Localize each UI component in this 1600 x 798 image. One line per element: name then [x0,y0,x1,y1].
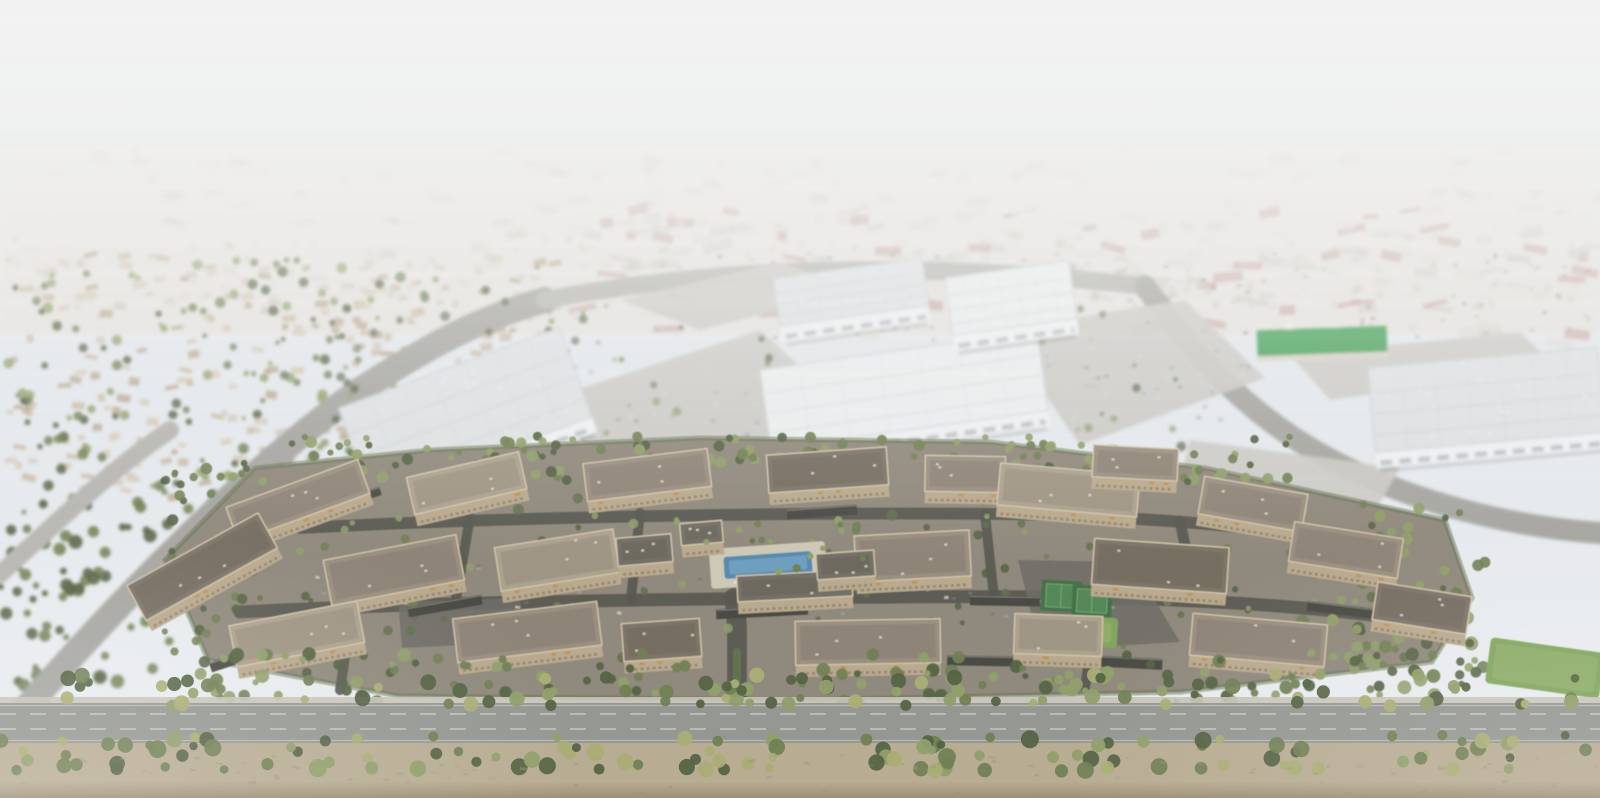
distant-block [457,279,466,284]
pool-palm [775,568,782,575]
commercial-car [1534,267,1537,270]
frontage-tree-lower [524,752,540,768]
commercial-car [1568,327,1572,329]
rooftop-unit [879,636,882,638]
dirt-speck [1107,761,1110,764]
complex-inner-tree [640,588,648,596]
suburb-tree [535,265,539,269]
balcony-awning [1110,517,1115,520]
complex-back-tree [634,444,645,455]
complex-inner-tree [296,547,304,555]
rooftop-unit [936,463,939,465]
complex-right-tree [1466,639,1475,648]
suburb-roof [452,300,459,308]
suburb-tree [282,302,291,311]
rooftop-unit [852,571,855,573]
frontage-tree-lower [1456,747,1469,760]
frontage-tree-upper [1029,699,1037,707]
dirt-speck [1554,786,1558,788]
rooftop-unit [929,558,932,560]
frontage-tree-lower [1504,764,1514,774]
frontage-tree-upper [453,683,468,698]
suburb-roof [223,324,232,332]
frontage-tree-lower [118,737,133,752]
suburb-roof [385,333,392,341]
complex-left-tree [201,463,213,475]
complex-front-tree-east [836,668,848,680]
frontage-tree-lower [166,731,182,747]
distant-tree [421,266,426,271]
frontage-tree-upper [420,674,436,690]
lot-b-car [1203,405,1208,408]
left-lower-tree [59,592,68,601]
complex-inner-tree [1043,554,1049,560]
commercial-block [1518,205,1543,213]
distant-block [1132,166,1140,173]
rooftop-unit [873,464,876,466]
complex-inner-tree [1360,501,1368,509]
complex-inner-tree [1121,643,1127,649]
commercial-car [1366,306,1370,309]
frontage-tree-upper [1420,696,1434,710]
distant-tree [192,279,196,283]
frontage-tree-lower [1072,749,1083,760]
complex-inner-tree [513,504,524,515]
pool-palm [768,539,774,545]
suburb-tree [318,289,326,297]
lot-b-car [1084,366,1089,368]
complex-front-tree-west [499,655,507,663]
distant-block [378,250,395,257]
frontage-tree-lower [679,759,695,775]
left-lower-tree [29,596,36,603]
commercial-car [1369,324,1373,327]
rooftop-unit [597,481,600,484]
dirt-speck [28,763,35,765]
distant-tree [292,271,295,274]
lot-a-car [743,392,748,395]
skylight [1051,311,1054,313]
distant-tree [694,239,698,243]
left-lower-tree [55,626,64,635]
lot-b-car [1227,380,1231,383]
suburb-tree [107,388,115,396]
frontage-tree-lower [1269,737,1285,753]
distant-block [561,201,572,210]
mid-tree [579,314,588,323]
frontage-tree-lower [1287,760,1302,775]
complex-right-tree [1351,641,1363,653]
complex-back-tree [289,440,296,447]
lot-b-car [1166,377,1170,380]
complex-right-tree [1479,557,1490,568]
suburb-roof [442,284,449,290]
frontage-tree-lower [887,751,902,766]
distant-tree [1303,289,1306,292]
left-lower-tree [111,675,125,689]
distant-block [1425,254,1446,263]
mid-tree [1100,412,1104,416]
frontage-tree-upper [1521,700,1530,709]
complex-back-tree [392,462,399,469]
complex-right-tree [1471,667,1482,678]
pool-palm [736,527,743,534]
dirt-speck [3,792,7,795]
suburb-tree [330,297,338,305]
suburb-tree [72,325,79,332]
distant-block [24,246,42,254]
lot-b-car [1075,428,1080,431]
left-lower-tree [73,583,84,594]
rooftop-unit [1400,614,1403,617]
suburb-roof [398,295,408,301]
complex-right-tree [1456,657,1464,665]
complex-left-tree [167,514,178,525]
rooftop-unit [1117,550,1120,552]
suburb-tree [253,410,262,419]
lot-b-car [1142,392,1146,395]
suburb-roof [228,415,238,422]
left-lower-tree [39,500,48,509]
suburb-tree [337,263,347,273]
mid-tree [501,298,509,306]
distant-tree [366,249,371,254]
lot-b-car [1201,384,1205,387]
balcony-awning [1164,483,1169,486]
complex-inner-tree [1246,606,1251,611]
frontage-tree-lower [974,750,984,760]
commercial-car [932,339,935,342]
distant-block [474,192,481,197]
frontage-tree-upper [463,697,478,712]
frontage-tree-upper [619,685,632,698]
mid-tree [1132,383,1141,392]
complex-right-tree [1406,648,1419,661]
complex-back-tree [1263,473,1274,484]
rooftop-unit [767,584,770,586]
complex-front-tree-east [816,663,830,677]
frontage-tree-upper [1564,695,1579,710]
complex-front-tree-east [1039,681,1053,695]
suburb-tree [284,257,290,263]
dirt-speck [839,754,843,757]
frontage-tree-upper [722,694,731,703]
carport-canopy [970,595,1040,606]
suburb-tree [83,270,90,277]
complex-back-tree [1034,452,1042,460]
suburb-tree [22,510,27,515]
complex-inner-tree [1001,589,1009,597]
complex-front-tree-east [1200,667,1210,677]
commercial-car [1112,262,1116,265]
dirt-speck [1313,773,1319,775]
left-lower-tree [60,568,67,575]
left-lower-tree [39,630,51,642]
skylight [847,279,850,281]
mid-tree [370,329,378,337]
left-lower-tree [88,526,99,537]
complex-inner-tree [960,620,965,625]
suburb-roof [356,321,368,330]
complex-front-tree-west [583,677,591,685]
suburb-roof [378,274,388,279]
lot-b-car [1246,365,1250,368]
commercial-car [1371,317,1375,320]
pool-palm [838,527,845,534]
lot-b-car [1096,377,1101,380]
rooftop-unit [1049,494,1052,496]
distant-block [476,263,499,269]
suburb-roof [436,299,444,305]
complex-front-tree-east [1307,649,1315,657]
skylight [999,274,1002,276]
complex-left-tree [171,471,178,478]
suburb-roof [6,409,14,414]
distant-tree [42,271,48,277]
dirt-speck [455,765,460,768]
lot-a-car [670,415,674,418]
frontage-tree-lower [11,765,21,775]
frontage-tree-upper [915,676,928,689]
suburb-roof [255,418,268,425]
complex-front-tree-east [1022,673,1028,679]
frontage-tree-lower [18,746,28,756]
complex-inner-tree [320,542,329,551]
suburb-tree [375,316,380,321]
frontage-tree-lower [1293,741,1309,757]
frontage-tree-upper [540,673,552,685]
suburb-tree [200,308,207,315]
complex-back-tree [309,451,319,461]
dirt-speck [383,778,389,781]
commercial-car [1237,284,1242,286]
commercial-block [1459,244,1468,251]
commercial-car [773,337,778,340]
complex-back-tree [1247,461,1254,468]
frontage-tree-upper [722,681,732,691]
complex-inner-tree [1178,611,1185,618]
frontage-tree-lower [1507,736,1519,748]
commercial-car [1530,328,1534,331]
commercial-car [1128,299,1133,302]
frontage-tree-upper [1269,668,1282,681]
distant-tree [12,236,17,241]
rooftop-unit [696,529,699,531]
suburb-roof [358,303,371,309]
left-lower-tree [6,525,16,535]
commercial-block [712,223,725,233]
mid-tree [1077,305,1084,312]
distant-block [240,202,256,208]
suburb-tree [293,379,300,386]
mid-tree [350,384,360,394]
commercial-car [698,330,702,333]
distant-block [375,174,394,181]
complex-back-tree [1216,468,1227,479]
skylight [1418,390,1421,392]
skylight [834,278,837,280]
distant-block [701,212,718,219]
complex-left-tree [162,628,168,634]
mid-tree [634,419,638,423]
suburb-roof [93,424,102,431]
complex-right-tree [1337,596,1345,604]
suburb-tree [172,399,181,408]
commercial-car [1388,265,1391,267]
frontage-tree-lower [769,753,778,762]
distant-tree [471,245,477,251]
suburb-tree [420,291,428,299]
aerial-rendering-image [0,0,1600,798]
complex-front-tree-east [1122,650,1132,660]
distant-block [647,179,655,186]
complex-front-tree-west [253,679,259,685]
complex-front-tree-west [491,662,502,673]
commercial-car [1479,304,1483,307]
suburb-tree [155,311,162,318]
complex-front-tree-west [460,661,468,669]
frontage-tree-upper [1225,678,1241,694]
suburb-roof [5,458,17,464]
frontage-tree-upper [1069,678,1083,692]
commercial-car [1556,293,1560,295]
dirt-speck [490,760,493,762]
complex-car [322,592,326,595]
balcony-awning [912,581,917,584]
suburb-tree [77,449,88,460]
suburb-tree [275,340,280,345]
suburb-tree [223,361,231,369]
distant-block [162,192,183,199]
commercial-block [1352,256,1360,263]
suburb-tree [48,279,56,287]
frontage-tree-upper [736,685,747,696]
distant-block [133,158,150,164]
suburb-roof [315,300,328,307]
pool-palm [852,522,861,531]
suburb-roof [365,289,376,295]
rooftop-unit [689,528,692,530]
skylight [1002,380,1005,382]
dirt-speck [1594,766,1599,768]
frontage-tree-lower [936,740,945,749]
commercial-block [1415,267,1438,278]
frontage-tree-upper [1038,696,1048,706]
frontage-tree-upper [482,695,495,708]
commercial-block [626,232,636,240]
rooftop-unit [515,620,518,623]
lot-b-car [1202,330,1207,333]
complex-front-tree-west [220,654,228,662]
balcony-awning [959,494,964,497]
distant-tree [484,253,490,259]
lot-a-car [745,433,750,436]
skylight [793,381,796,383]
mid-tree [344,305,352,313]
complex-back-tree [726,435,733,442]
frontage-tree-lower [916,739,931,754]
left-lower-tree [101,652,109,660]
frontage-tree-lower [110,762,123,775]
distant-block [7,251,20,257]
dirt-speck [574,763,578,766]
frontage-tree-lower [1218,759,1230,771]
distant-block [309,276,328,280]
dirt-speck [313,759,318,762]
complex-left-tree [237,594,247,604]
complex-back-tree [377,471,389,483]
skylight [982,369,985,371]
frontage-tree-lower [176,749,188,761]
distant-block [467,239,474,244]
dirt-speck [271,755,276,758]
commercial-car [677,267,681,269]
complex-back-tree [914,440,925,451]
distant-tree [1330,302,1335,307]
complex-back-tree [953,439,960,446]
suburb-tree [120,410,130,420]
mid-tree [282,324,288,330]
distant-tree [916,249,923,256]
frontage-tree-upper [749,668,764,683]
dirt-speck [669,786,673,789]
distant-tree [89,299,93,303]
arterial-road [0,703,1600,743]
skylight [1021,349,1024,351]
complex-back-tree [1250,435,1258,443]
complex-right-tree [1440,585,1446,591]
distant-tree [429,257,435,263]
rooftop-unit [565,558,568,561]
distant-tree [204,293,210,299]
complex-back-tree [546,466,557,477]
complex-right-tree [1392,645,1399,652]
distant-block [41,211,61,216]
building-roof-inset [1097,450,1173,476]
frontage-tree-upper [444,699,454,709]
lot-b-car [1104,375,1109,377]
rooftop-unit [574,539,577,542]
commercial-car [1245,291,1250,293]
frontage-tree-upper [900,700,911,711]
frontage-tree-lower [1055,764,1068,777]
frontage-tree-lower [190,732,200,742]
complex-right-tree [1374,510,1386,522]
frontage-tree-upper [765,697,777,709]
distant-tree [566,237,572,243]
mid-tree [571,337,579,345]
skylight [1490,379,1493,381]
frontage-tree-lower [1151,758,1168,775]
complex-back-tree [1025,433,1033,441]
rooftop-unit [691,634,694,636]
mid-tree [679,325,684,330]
frontage-tree-lower [1561,731,1570,740]
complex-back-tree [327,450,333,456]
suburb-tree [183,406,190,413]
frontage-tree-upper [848,694,862,708]
rooftop-unit [1084,625,1087,627]
frontage-tree-lower [712,754,726,768]
lot-a-car [627,404,631,407]
complex-back-tree [539,453,545,459]
frontage-tree-lower [428,731,438,741]
frontage-tree-upper [782,697,796,711]
complex-back-tree [715,457,726,468]
complex-inner-tree [592,513,599,520]
frontage-tree-lower [1506,753,1515,762]
frontage-tree-lower [539,757,556,774]
